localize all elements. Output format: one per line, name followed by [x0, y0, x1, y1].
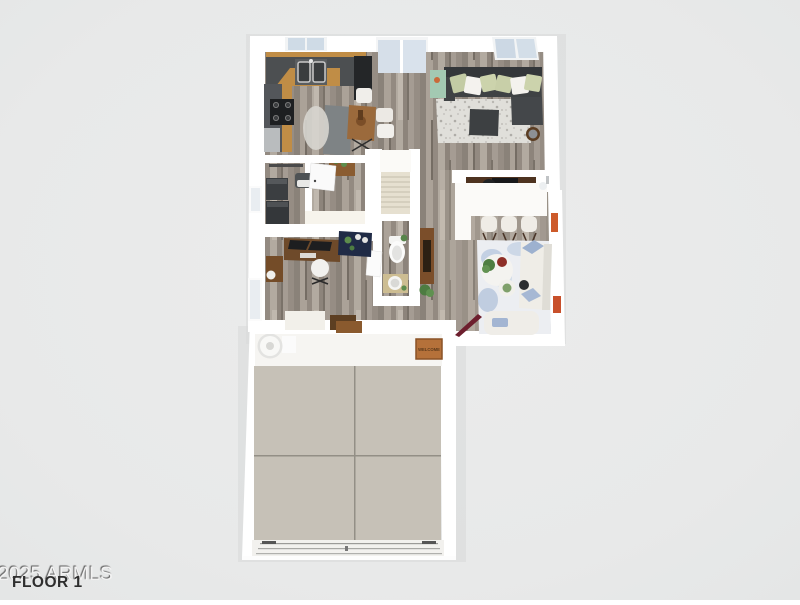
svg-text:FLOOR 1: FLOOR 1 [12, 574, 83, 591]
svg-text:WELCOME: WELCOME [418, 347, 440, 352]
